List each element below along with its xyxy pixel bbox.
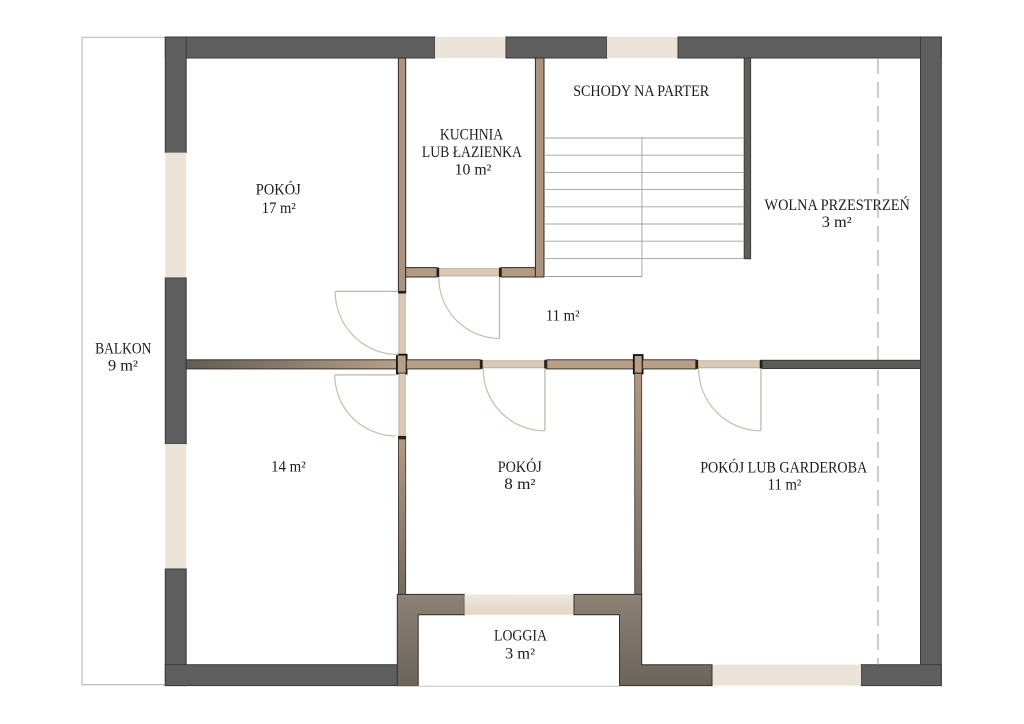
svg-text:SCHODY NA PARTER: SCHODY NA PARTER	[573, 83, 710, 100]
svg-text:WOLNA PRZESTRZEŃ: WOLNA PRZESTRZEŃ	[765, 197, 910, 214]
svg-text:POKÓJ: POKÓJ	[498, 459, 542, 476]
svg-text:POKÓJ LUB GARDEROBA: POKÓJ LUB GARDEROBA	[700, 459, 867, 476]
svg-text:9 m²: 9 m²	[108, 357, 138, 374]
svg-text:LUB ŁAZIENKA: LUB ŁAZIENKA	[422, 144, 522, 161]
svg-text:17 m²: 17 m²	[262, 200, 296, 217]
svg-text:8 m²: 8 m²	[504, 476, 536, 493]
svg-text:10 m²: 10 m²	[455, 162, 492, 179]
svg-text:POKÓJ: POKÓJ	[256, 182, 301, 199]
svg-text:3 m²: 3 m²	[822, 214, 852, 231]
svg-text:11 m²: 11 m²	[768, 477, 802, 494]
svg-text:BALKON: BALKON	[95, 341, 151, 358]
svg-text:KUCHNIA: KUCHNIA	[440, 127, 503, 144]
svg-text:14 m²: 14 m²	[271, 459, 306, 476]
svg-text:11 m²: 11 m²	[546, 307, 580, 324]
svg-text:LOGGIA: LOGGIA	[494, 628, 547, 645]
svg-text:3 m²: 3 m²	[505, 646, 535, 663]
